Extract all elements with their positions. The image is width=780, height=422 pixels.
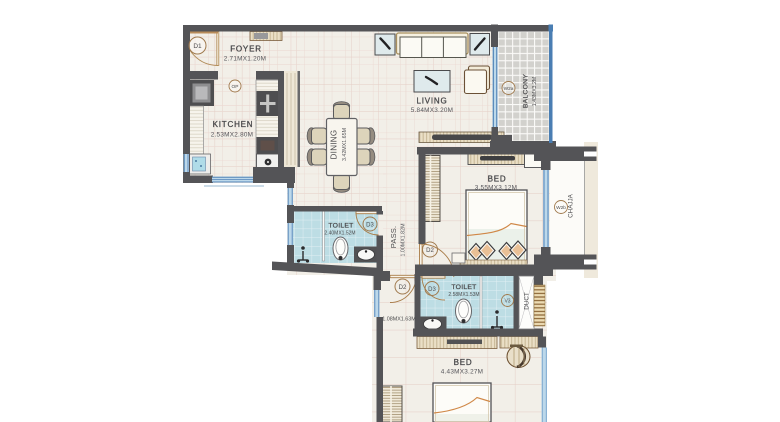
svg-text:4.43MX3.27M: 4.43MX3.27M	[441, 369, 484, 376]
svg-text:D3: D3	[428, 287, 436, 293]
svg-text:2.58MX1.53M: 2.58MX1.53M	[448, 292, 479, 298]
svg-text:2.71MX1.20M: 2.71MX1.20M	[224, 56, 267, 63]
svg-text:CHAJJA: CHAJJA	[568, 193, 575, 218]
svg-text:3.55MX3.12M: 3.55MX3.12M	[475, 185, 518, 192]
svg-text:W2a: W2a	[504, 86, 514, 92]
svg-text:2.53MX2.80M: 2.53MX2.80M	[211, 132, 254, 139]
svg-text:D2: D2	[399, 285, 407, 291]
svg-text:3.42MX1.65M: 3.42MX1.65M	[342, 128, 348, 161]
svg-text:BALCONY: BALCONY	[523, 74, 530, 108]
svg-text:KITCHEN: KITCHEN	[213, 120, 254, 129]
svg-text:D2: D2	[426, 248, 434, 254]
svg-text:PASS.: PASS.	[389, 226, 398, 249]
svg-text:OP: OP	[232, 84, 239, 90]
svg-text:LIVING: LIVING	[416, 97, 447, 106]
svg-text:2.40MX1.52M: 2.40MX1.52M	[324, 231, 355, 237]
svg-text:FOYER: FOYER	[230, 45, 262, 54]
svg-text:DUCT: DUCT	[524, 292, 531, 310]
svg-text:1.43MX3.2M: 1.43MX3.2M	[532, 77, 538, 106]
svg-text:1.08MX1.63M: 1.08MX1.63M	[382, 317, 416, 323]
svg-text:D1: D1	[193, 43, 202, 50]
svg-text:V3: V3	[504, 299, 510, 305]
svg-text:BED: BED	[488, 175, 507, 184]
svg-text:1.00MX1.82M: 1.00MX1.82M	[401, 224, 407, 257]
svg-text:W2b: W2b	[556, 205, 566, 211]
svg-text:BED: BED	[454, 358, 473, 367]
svg-text:TOILET: TOILET	[328, 223, 353, 230]
svg-text:D3: D3	[366, 222, 374, 228]
svg-text:DINING: DINING	[330, 130, 339, 160]
svg-text:TOILET: TOILET	[451, 284, 476, 291]
svg-text:5.84MX3.20M: 5.84MX3.20M	[411, 107, 454, 114]
